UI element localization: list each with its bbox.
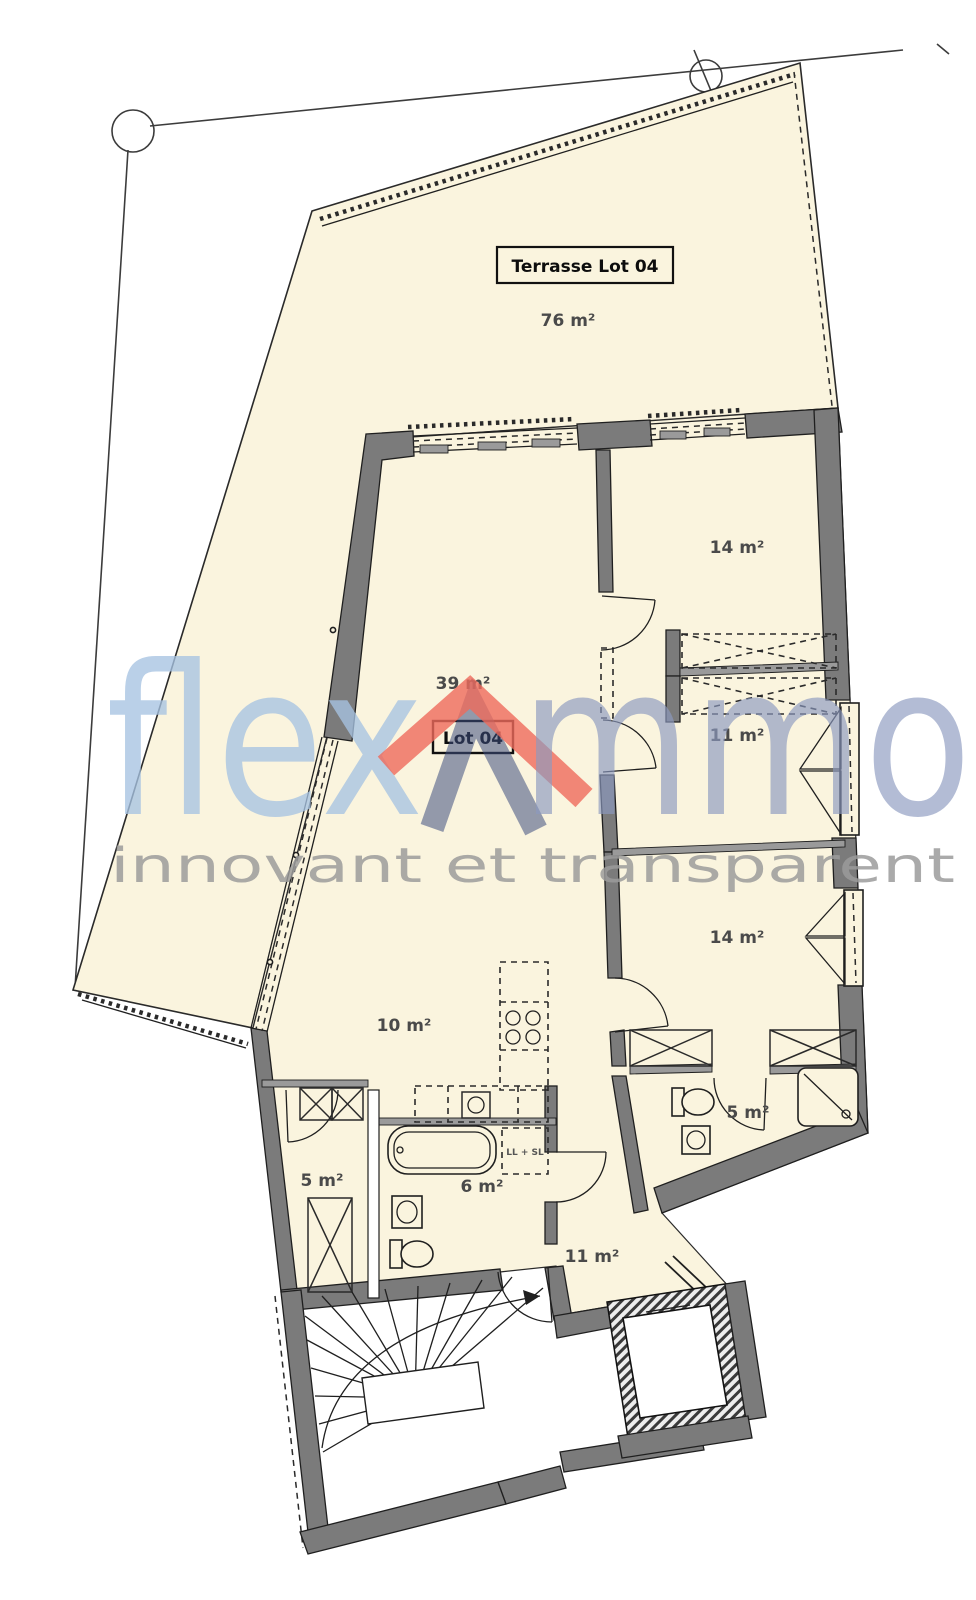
watermark-brand-suffix: mmo (520, 622, 972, 864)
entry-west-area: 5 m² (301, 1171, 344, 1191)
bathroom-east-area: 5 m² (727, 1103, 770, 1123)
floor-plan-page: Terrasse Lot 04 76 m² 14 m² 39 m² Lot 04… (0, 0, 976, 1600)
watermark: flex mmo innovant et transparent (106, 622, 972, 894)
toilet (682, 1089, 714, 1115)
toilet (401, 1241, 433, 1267)
bedroom-north-area: 14 m² (710, 538, 765, 558)
laundry-note: LL + SL (506, 1148, 544, 1158)
bathroom-west-area: 6 m² (461, 1177, 504, 1197)
elevator-cabin (623, 1305, 727, 1418)
sink (682, 1126, 710, 1154)
terrace-area: 76 m² (541, 311, 596, 331)
terrace-title: Terrasse Lot 04 (511, 257, 658, 277)
watermark-brand-prefix: flex (106, 622, 424, 864)
elevator (607, 1281, 766, 1458)
survey-marker-icon (690, 60, 722, 92)
floor-plan-drawing: Terrasse Lot 04 76 m² 14 m² 39 m² Lot 04… (0, 0, 976, 1600)
watermark-tagline: innovant et transparent (110, 838, 955, 894)
kitchen-area: 10 m² (377, 1016, 432, 1036)
survey-marker-icon (112, 110, 154, 152)
hall-area: 11 m² (565, 1247, 620, 1267)
bedroom-east-area: 14 m² (710, 928, 765, 948)
